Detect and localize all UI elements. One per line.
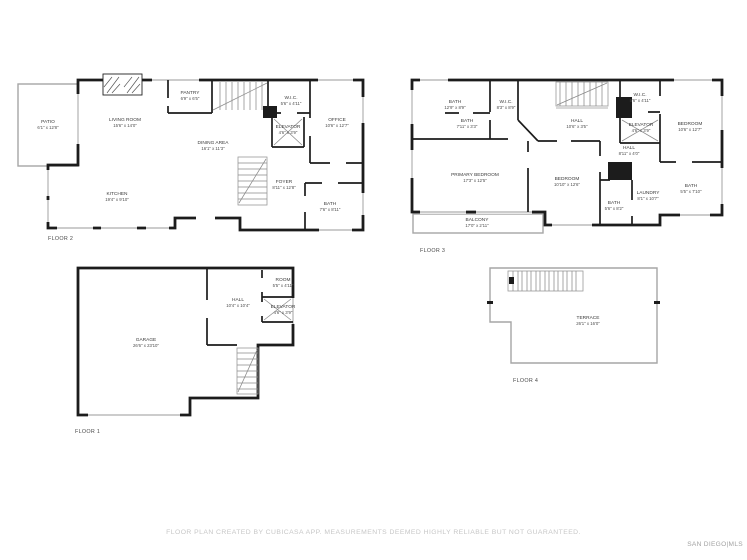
disclaimer-text: FLOOR PLAN CREATED BY CUBICASA APP. MEAS… [0,529,747,536]
room-label-kitchen: KITCHEN 19'4" x 9'10" [105,191,129,202]
room-label-patio: PATIO 6'1" x 12'8" [37,119,59,130]
room-label-dining-area: DINING AREA 16'1" x 11'3" [198,140,230,151]
svg-text:17'3" x 12'5": 17'3" x 12'5" [463,178,487,183]
floor-2-caption: FLOOR 2 [48,236,73,242]
room-label-f1-hall: HALL 10'4" x 10'4" [226,297,250,308]
svg-text:5'6" x 8'2": 5'6" x 8'2" [605,206,624,211]
floor-1-stairs [237,348,258,394]
room-label-f3-bath-2: BATH 7'11" x 3'3" [457,118,478,129]
svg-text:7'11" x 3'3": 7'11" x 3'3" [457,124,478,129]
svg-text:12'9" x 8'9": 12'9" x 8'9" [444,105,466,110]
room-label-f3-bedroom-1: BEDROOM 10'6" x 12'7" [678,121,703,132]
wall-tick-right [654,301,660,304]
svg-text:8'11" x 4'0": 8'11" x 4'0" [619,151,640,156]
room-label-f3-bedroom-2: BEDROOM 10'10" x 12'6" [554,176,580,187]
floor-4-terrace-walls [490,268,657,363]
floor-2-lower-stairs [238,157,267,205]
floor-2-plan: PATIO 6'1" x 12'8" LIVING ROOM 15'6" x 1… [18,74,363,242]
svg-text:4'6" x 3'9": 4'6" x 3'9" [632,128,651,133]
svg-text:4'6" x 3'9": 4'6" x 3'9" [274,310,293,315]
svg-text:10'4" x 10'4": 10'4" x 10'4" [226,303,250,308]
floor-2-upper-stairs [213,82,267,110]
room-label-f3-hall-1: HALL 10'6" x 3'5" [566,118,588,129]
svg-text:5'5" x 7'10": 5'5" x 7'10" [680,189,702,194]
room-label-f1-room: ROOM 5'5" x 4'11" [273,277,294,288]
floor-2-exterior-walls [48,80,363,230]
svg-text:8'3" x 8'9": 8'3" x 8'9" [497,105,516,110]
floor-3-caption: FLOOR 3 [420,248,445,254]
room-label-terrace: TERRACE 26'1" x 16'0" [576,315,600,326]
room-label-primary-bedroom: PRIMARY BEDROOM 17'3" x 12'5" [451,172,499,183]
svg-text:10'6" x 3'5": 10'6" x 3'5" [566,124,588,129]
room-label-f3-wic-2: W.I.C. 5'6" x 4'11" [630,92,651,103]
svg-text:8'11" x 12'8": 8'11" x 12'8" [272,185,296,190]
room-label-elevator-floor2: ELEVATOR 4'6" x 3'9" [276,124,301,135]
room-label-pantry: PANTRY 6'9" x 6'5" [180,90,200,101]
svg-text:10'6" x 12'7": 10'6" x 12'7" [325,123,349,128]
wall-tick-left [487,301,493,304]
room-label-office: OFFICE 10'6" x 12'7" [325,117,349,128]
room-label-bath-floor2: BATH 7'6" x 8'11" [320,201,341,212]
svg-text:6'1" x 12'8": 6'1" x 12'8" [37,125,59,130]
floor-1-exterior-walls [78,268,293,415]
room-label-wic-floor2: W.I.C. 5'6" x 4'11" [281,95,302,106]
svg-text:4'6" x 3'9": 4'6" x 3'9" [279,130,298,135]
floor-4-caption: FLOOR 4 [513,378,538,384]
floor-2-windows [48,80,363,230]
fireplace-hatch [103,74,142,95]
room-label-f3-bath-4: BATH 5'5" x 7'10" [680,183,702,194]
room-label-laundry: LAUNDRY 8'1" x 10'7" [637,190,661,201]
svg-text:26'1" x 16'0": 26'1" x 16'0" [576,321,600,326]
svg-text:6'9" x 6'5": 6'9" x 6'5" [181,96,200,101]
room-label-garage: GARAGE 26'6" x 23'10" [133,337,159,348]
floor-2-wall-openings [48,80,363,230]
room-label-f3-wic-1: W.I.C. 8'3" x 8'9" [497,99,516,110]
svg-text:7'6" x 8'11": 7'6" x 8'11" [320,207,341,212]
room-label-balcony: BALCONY 17'0" x 2'11" [465,217,489,228]
svg-text:16'1" x 11'3": 16'1" x 11'3" [201,146,225,151]
room-label-f3-bath-1: BATH 12'9" x 8'9" [444,99,466,110]
svg-text:10'10" x 12'6": 10'10" x 12'6" [554,182,580,187]
svg-text:5'6" x 4'11": 5'6" x 4'11" [630,98,651,103]
floor-3-stairs [556,82,608,108]
svg-text:10'6" x 12'7": 10'6" x 12'7" [678,127,702,132]
svg-text:8'1" x 10'7": 8'1" x 10'7" [637,196,659,201]
room-label-foyer: FOYER 8'11" x 12'8" [272,179,296,190]
floor-1-caption: FLOOR 1 [75,429,100,435]
room-label-f3-bath-3: BATH 5'6" x 8'2" [605,200,624,211]
svg-text:15'6" x 14'0": 15'6" x 14'0" [113,123,137,128]
room-label-f1-elevator: ELEVATOR 4'6" x 3'9" [271,304,296,315]
wall-block [263,106,277,118]
floor-1-plan: GARAGE 26'6" x 23'10" HALL 10'4" x 10'4"… [75,268,296,435]
svg-text:17'0" x 2'11": 17'0" x 2'11" [465,223,489,228]
svg-text:5'6" x 4'11": 5'6" x 4'11" [281,101,302,106]
room-label-f3-elevator: ELEVATOR 4'6" x 3'9" [629,122,654,133]
floor-4-stairwell [508,271,583,291]
sandiego-mls-logo: SAN DIEGO|MLS [687,541,743,548]
shaft-block-lower [608,162,632,180]
svg-text:5'5" x 4'11": 5'5" x 4'11" [273,283,294,288]
room-label-living-room: LIVING ROOM 15'6" x 14'0" [109,117,141,128]
floor-3-plan: BATH 12'9" x 8'9" BATH 7'11" x 3'3" W.I.… [412,80,722,254]
room-label-f3-hall-2: HALL 8'11" x 4'0" [619,145,640,156]
floor-plan-sheet: PATIO 6'1" x 12'8" LIVING ROOM 15'6" x 1… [0,0,747,560]
floor-plan-drawing: PATIO 6'1" x 12'8" LIVING ROOM 15'6" x 1… [0,0,747,560]
svg-text:19'4" x 9'10": 19'4" x 9'10" [105,197,129,202]
svg-text:26'6" x 23'10": 26'6" x 23'10" [133,343,159,348]
floor-4-plan: TERRACE 26'1" x 16'0" FLOOR 4 [487,268,660,384]
